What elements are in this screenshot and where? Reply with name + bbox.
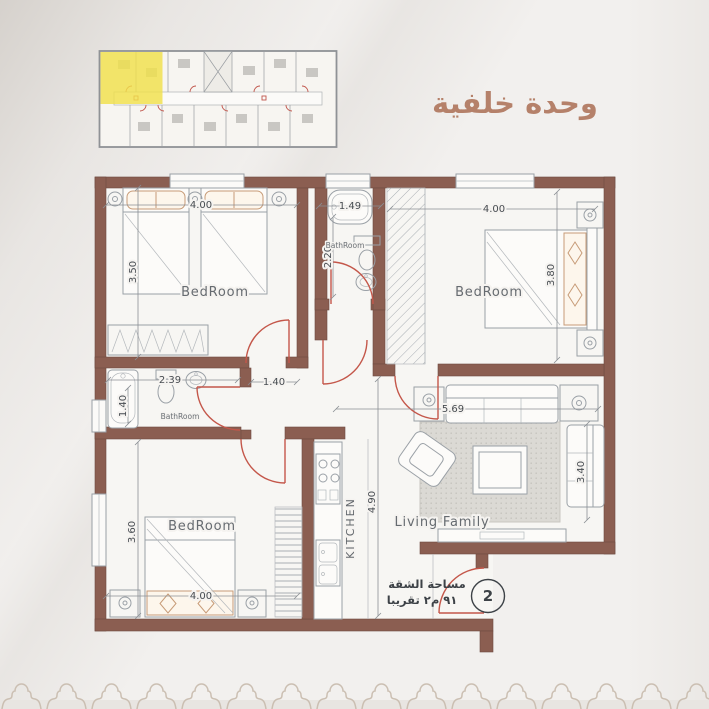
- kitchen-fixtures: [314, 442, 342, 619]
- area-note-line1: مساحة الشقة: [388, 577, 466, 591]
- building-overview-plan: [98, 46, 338, 152]
- window-top-left: [170, 174, 244, 188]
- wardrobe-hatch: [387, 188, 425, 364]
- headboard: [587, 228, 597, 330]
- dim-bedroom-bl-depth: 3.60: [127, 521, 138, 543]
- dim-hallway-width: 1.40: [263, 377, 285, 388]
- coffee-table: [473, 446, 527, 494]
- window-top-right: [456, 174, 534, 188]
- dim-bedroom-tr-width: 4.00: [483, 204, 505, 215]
- window-left-bedroom: [92, 494, 106, 566]
- label-bedroom-top-right: BedRoom: [455, 285, 523, 300]
- label-bedroom-top-left: BedRoom: [181, 285, 249, 300]
- label-living-family: Living Family: [394, 515, 489, 530]
- dim-bedroom-tl-depth: 3.50: [128, 261, 139, 283]
- dim-bedroom-tl-width: 4.00: [190, 200, 212, 211]
- dim-living-depth: 3.40: [576, 461, 587, 483]
- floor-plan: 4.00 3.50 1.49 2.20 4.00 3.80 2.39 1.40 …: [90, 172, 620, 654]
- scallop-border: [0, 683, 709, 709]
- window-left-bathroom: [92, 400, 106, 432]
- overview-highlighted-unit: [101, 52, 163, 104]
- window-bathroom-top: [326, 174, 370, 188]
- dim-bathroom-left-width: 2.39: [159, 375, 181, 386]
- dim-bedroom-bl-width: 4.00: [190, 591, 212, 602]
- living-bottom-wall: [420, 542, 615, 554]
- dim-bathroom-top-width: 1.49: [339, 201, 361, 212]
- area-note-line2: ٩١ م٢ تقريبا: [387, 593, 458, 607]
- label-bathroom-left: BathRoom: [161, 412, 200, 421]
- bottom-wall: [95, 619, 493, 631]
- unit-number: 2: [483, 587, 493, 605]
- page-title: وحدة خلفية: [410, 86, 620, 120]
- entrance-stub-wall: [476, 554, 488, 568]
- wardrobe-hatch: [275, 507, 302, 617]
- tv-unit: [438, 529, 566, 542]
- dim-kitchen-depth: 4.90: [367, 491, 378, 513]
- label-bathroom-top: BathRoom: [326, 241, 365, 250]
- page: وحدة خلفية: [0, 0, 709, 709]
- label-kitchen: KITCHEN: [344, 497, 357, 559]
- label-bedroom-bottom-left: BedRoom: [168, 519, 236, 534]
- kitchen-counter: [314, 442, 342, 619]
- dim-living-width: 5.69: [442, 404, 464, 415]
- dim-bedroom-tr-depth: 3.80: [546, 264, 557, 286]
- dim-bathroom-left-depth: 1.40: [118, 395, 129, 417]
